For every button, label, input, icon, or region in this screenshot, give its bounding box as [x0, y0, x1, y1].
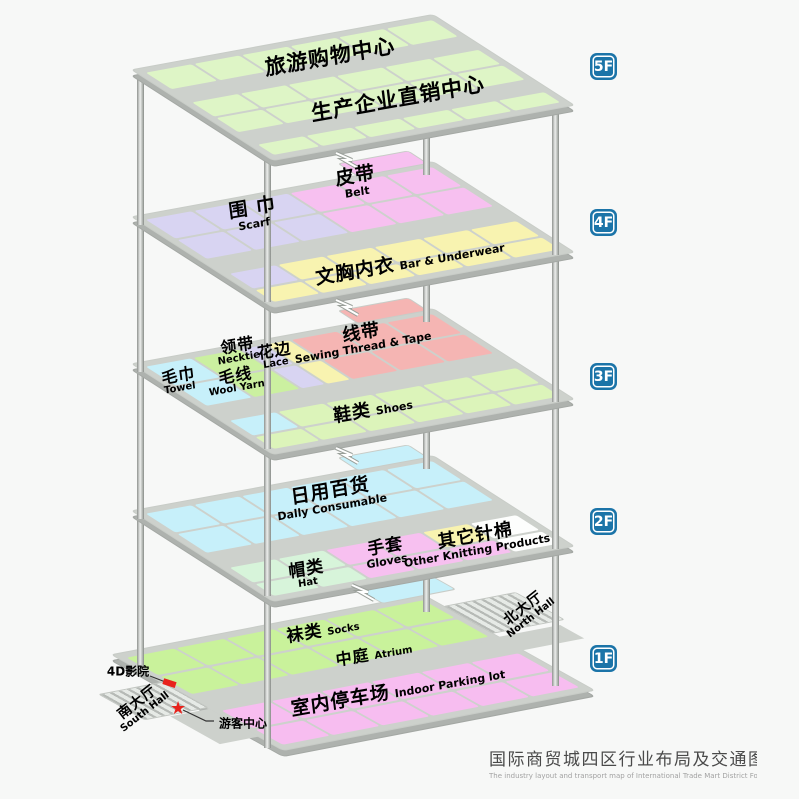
floor-badge-1f: 1F	[590, 645, 617, 672]
escalator-arrow-icon	[352, 585, 374, 600]
label-towel: 毛巾 Towel	[161, 364, 198, 398]
trade-mart-layout-map: ★ 旅游购物中心 生产企业直销中心 皮带 Belt 围 巾 Scarf 文胸内衣…	[0, 0, 799, 799]
tourist-center-star-icon: ★	[170, 698, 186, 719]
escalator-arrow-icon	[336, 300, 358, 315]
label-4d-cinema: 4D影院	[107, 666, 149, 679]
map-title: 国际商贸城四区行业布局及交通图 The industry layout and …	[489, 745, 757, 780]
floor-badge-4f: 4F	[590, 209, 617, 236]
floor-badge-2f: 2F	[590, 508, 617, 535]
cinema-marker-icon	[162, 678, 176, 688]
map-title-en: The industry layout and transport map of…	[489, 772, 757, 780]
floor-badge-5f: 5F	[590, 53, 617, 80]
label-belt: 皮带 Belt	[334, 162, 377, 201]
escalator-arrow-icon	[336, 448, 358, 463]
map-title-zh: 国际商贸城四区行业布局及交通图	[489, 745, 757, 770]
floor-badge-3f: 3F	[590, 363, 617, 390]
label-tourist-center: 游客中心	[219, 718, 267, 731]
label-hat: 帽类 Hat	[287, 557, 326, 592]
leader-line	[183, 710, 214, 721]
